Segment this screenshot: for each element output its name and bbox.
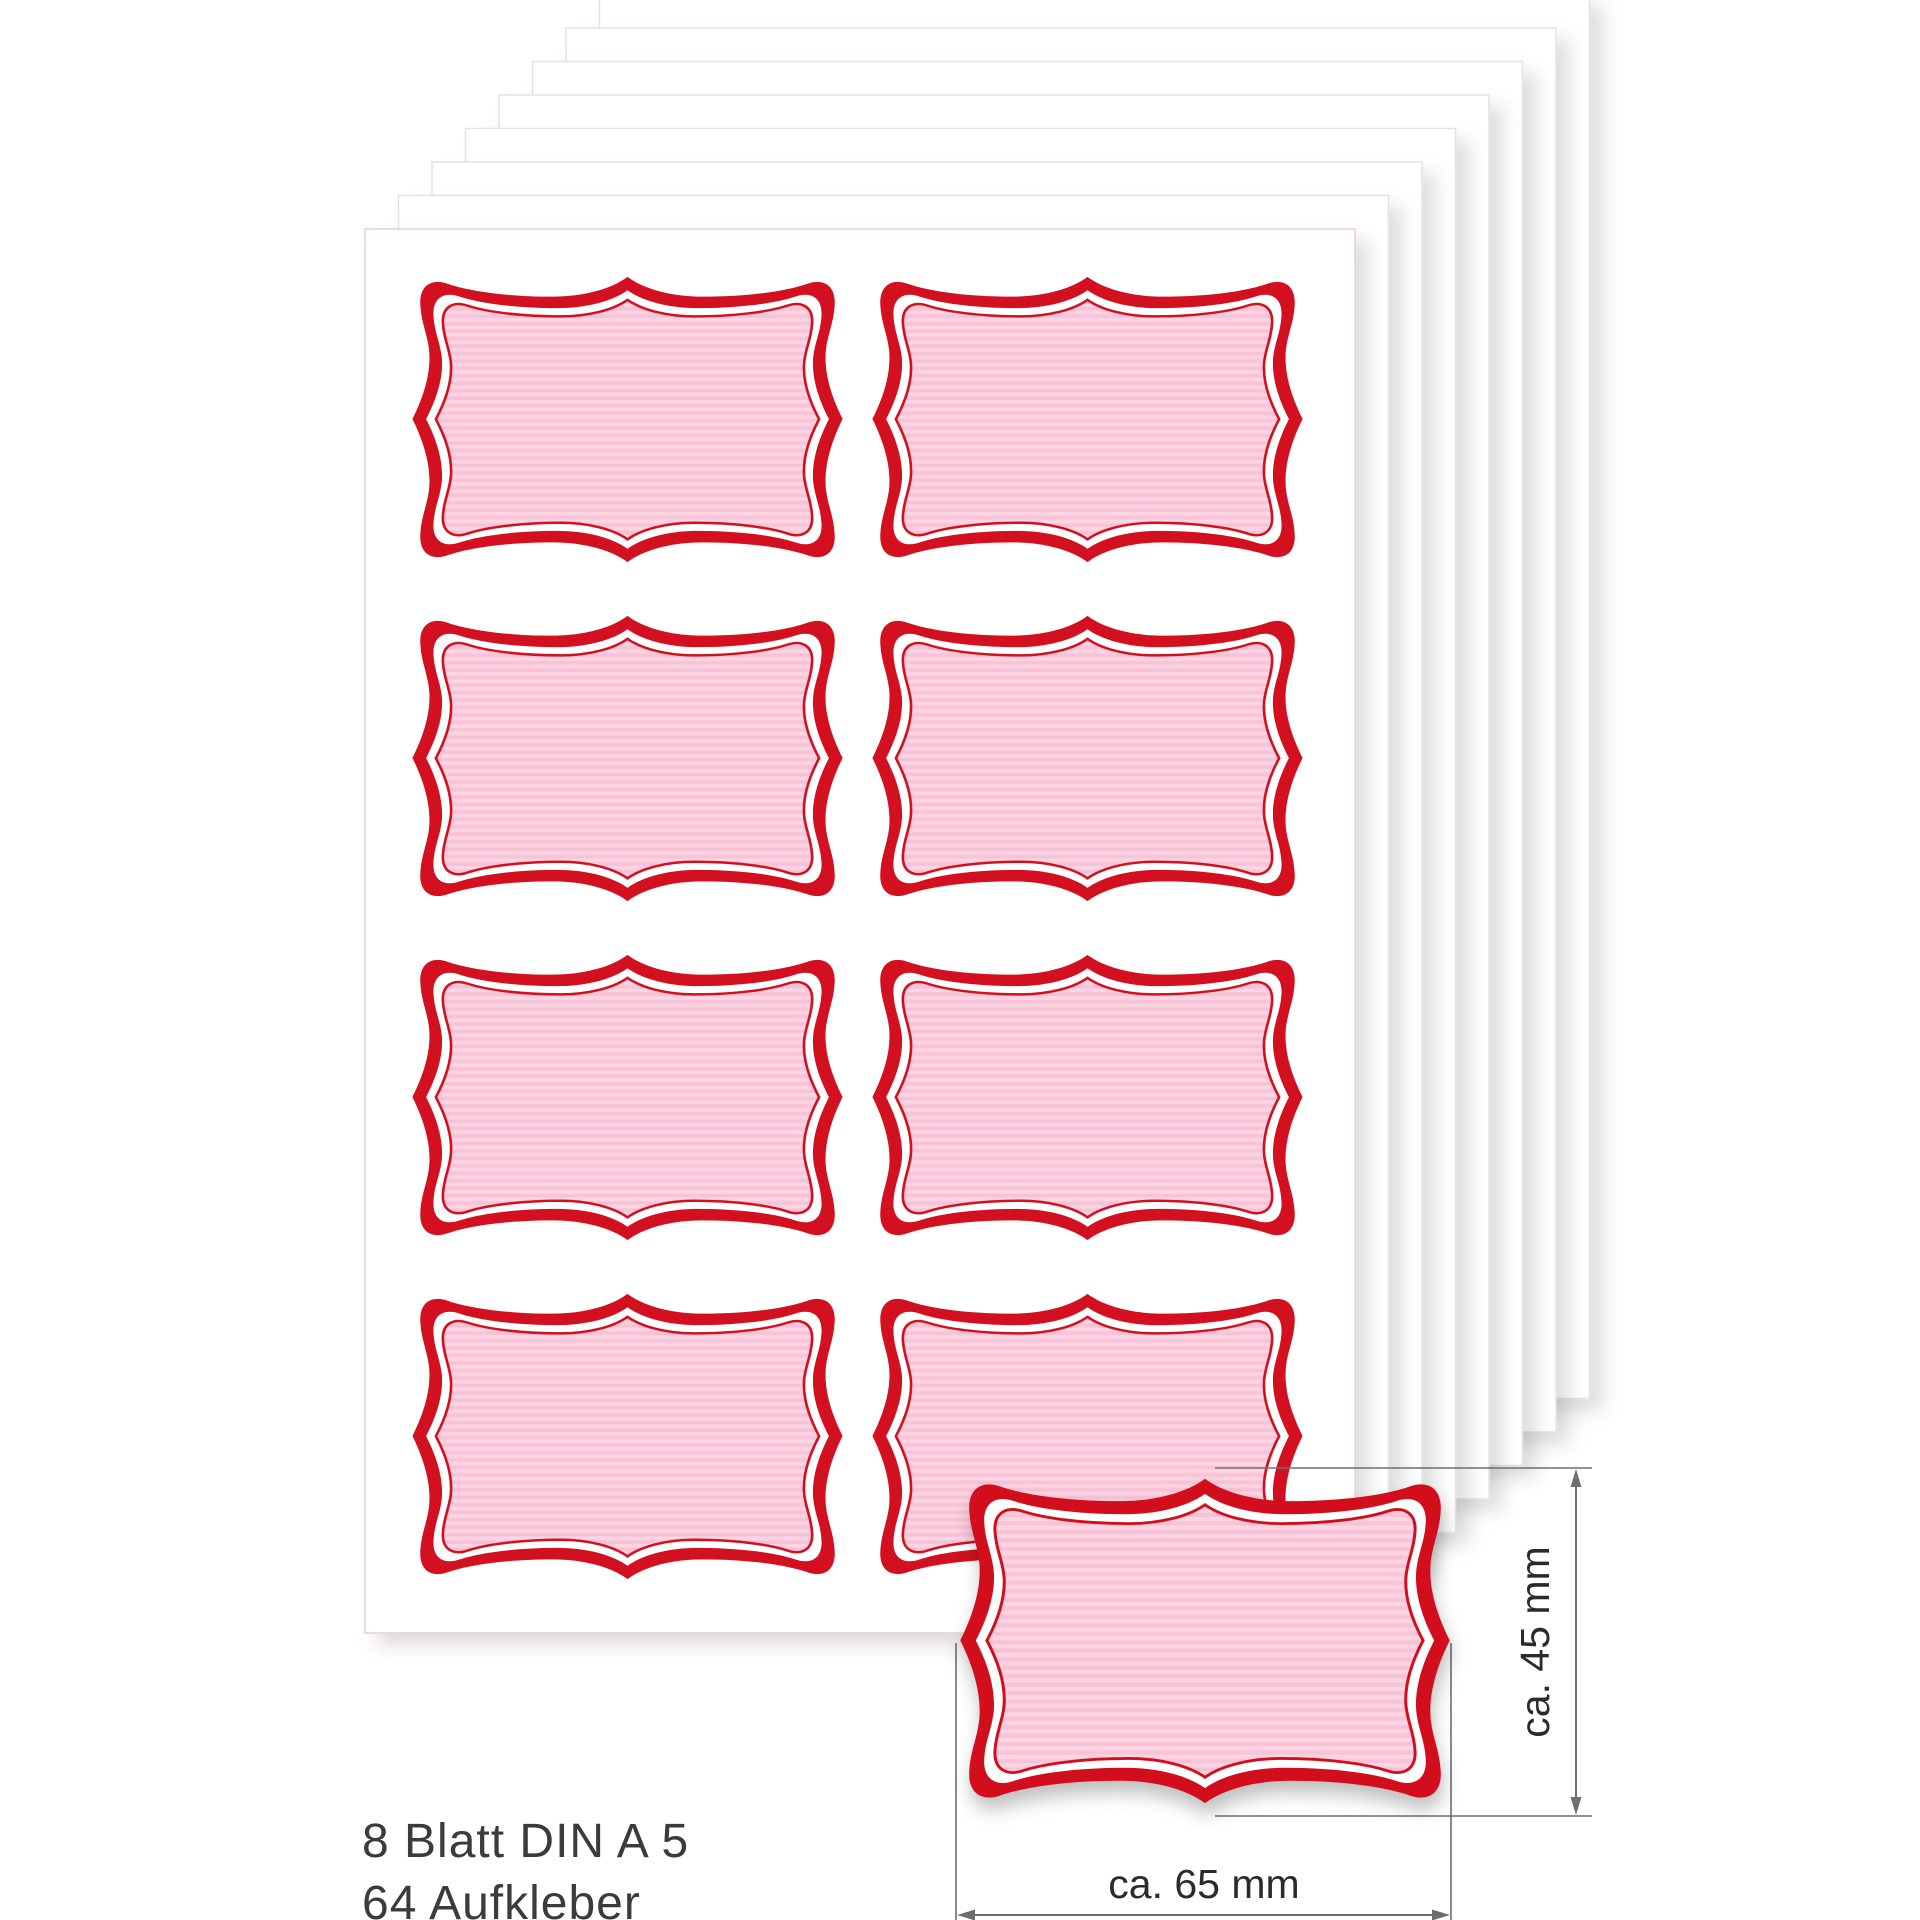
- sticker-row2-col2: [872, 616, 1302, 901]
- height-dimension: [1571, 1469, 1582, 1815]
- demo-sticker: [960, 1479, 1450, 1803]
- sticker-row3-col2: [872, 955, 1302, 1240]
- sticker-row2-col1: [412, 616, 842, 901]
- arrow-down-icon: [1571, 1797, 1582, 1815]
- sticker-row1-col2: [872, 277, 1302, 562]
- width-dimension: [957, 1910, 1450, 1920]
- product-image: ca. 45 mm ca. 65 mm 8 Blatt DIN A 5 64 A…: [0, 0, 1920, 1920]
- width-dimension-label: ca. 65 mm: [1108, 1861, 1299, 1907]
- arrow-right-icon: [1432, 1910, 1450, 1920]
- sticker-row1-col1: [412, 277, 842, 562]
- arrow-up-icon: [1571, 1469, 1582, 1487]
- sticker-row4-col1: [412, 1294, 842, 1579]
- caption-line-2: 64 Aufkleber: [362, 1877, 641, 1920]
- caption: 8 Blatt DIN A 5 64 Aufkleber: [362, 1815, 689, 1920]
- sticker-row3-col1: [412, 955, 842, 1240]
- arrow-left-icon: [957, 1910, 975, 1920]
- height-dimension-label: ca. 45 mm: [1512, 1546, 1558, 1737]
- caption-line-1: 8 Blatt DIN A 5: [362, 1815, 689, 1868]
- sticker-sheet-front: [365, 229, 1355, 1633]
